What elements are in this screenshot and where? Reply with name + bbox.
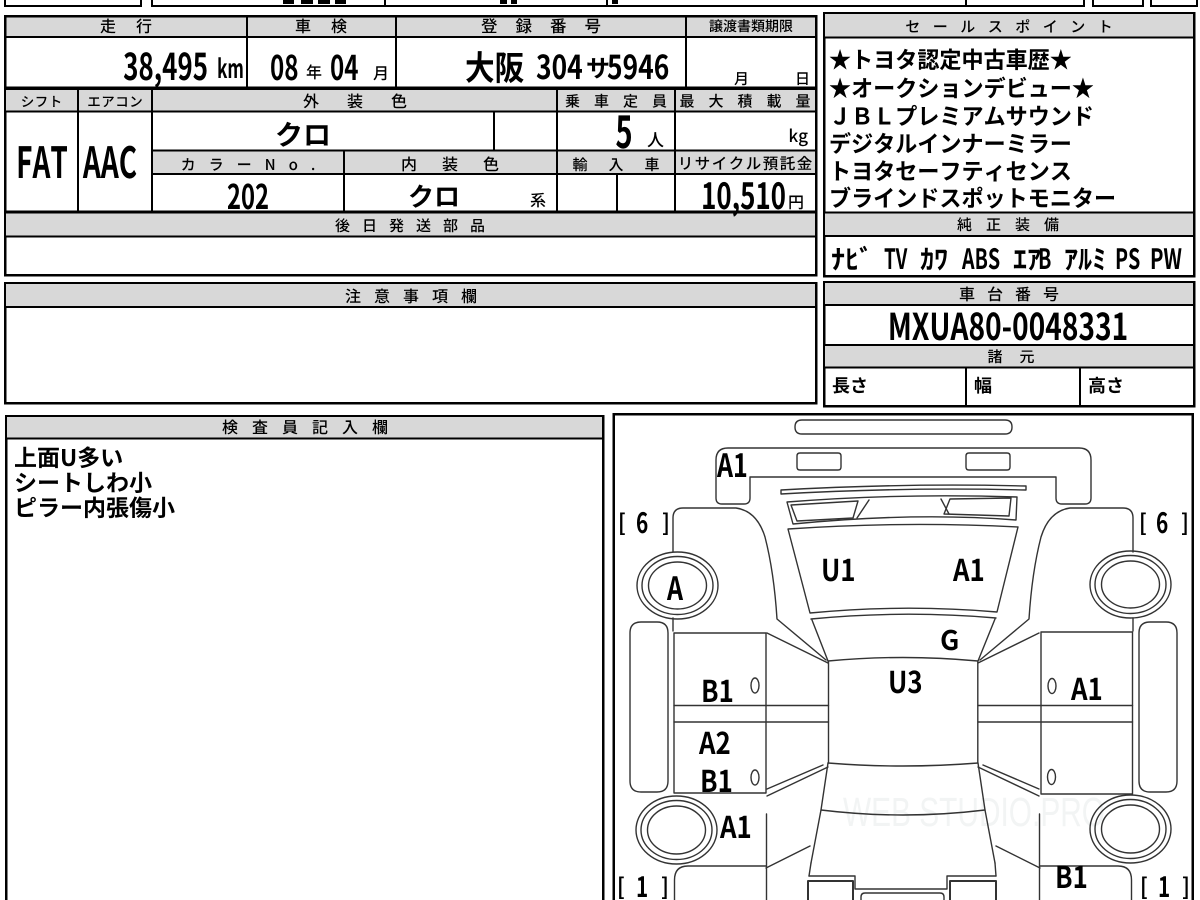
svg-text:WEB STUDIO.PRO: WEB STUDIO.PRO [843, 789, 1105, 835]
